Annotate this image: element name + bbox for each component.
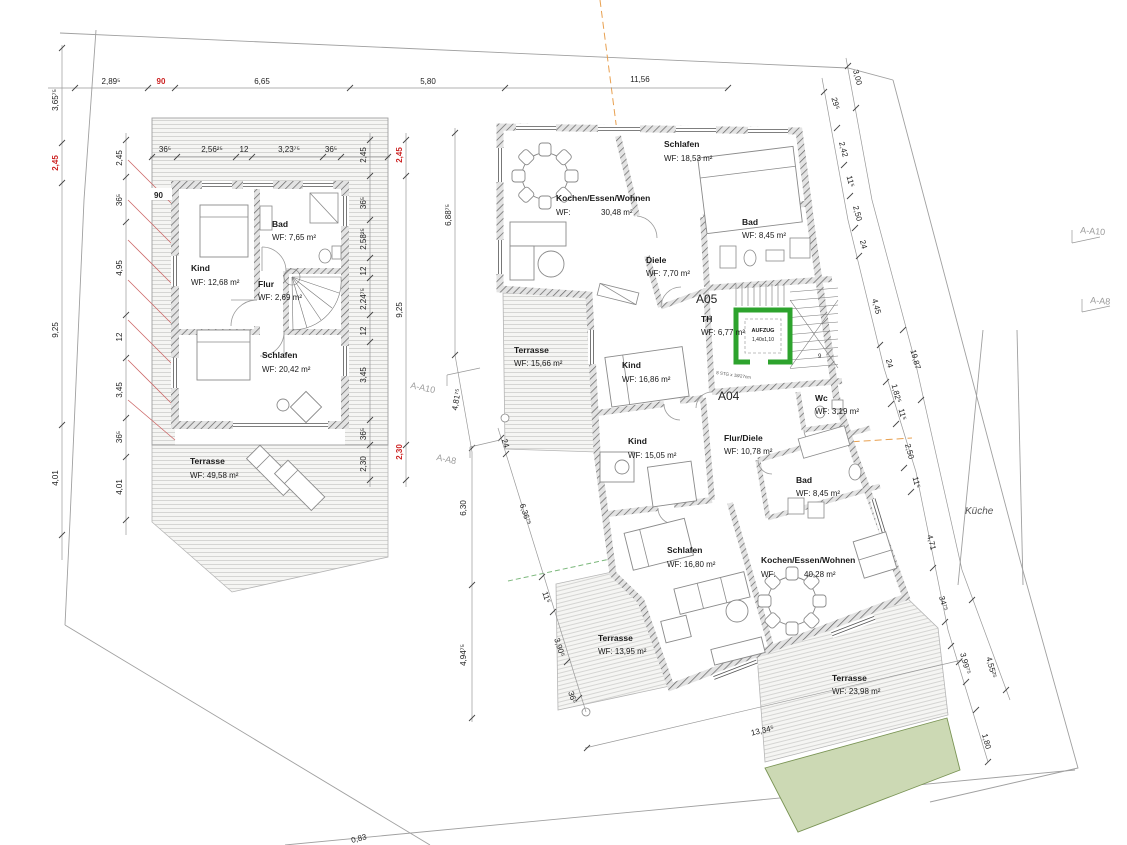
dim-label: 5,80 <box>420 77 436 86</box>
room-name: Kind <box>191 263 210 273</box>
right-plan: 9 8 STG x 18/27cm AUFZUG 1,40x1,10 <box>496 124 960 832</box>
dim-label: 9,25 <box>395 302 404 318</box>
room-name: Flur <box>258 279 275 289</box>
dim-label: 2,24⁷⁵ <box>359 288 368 310</box>
bed-kind <box>200 205 248 257</box>
dim-label: 2,42 <box>837 141 850 159</box>
dim-label: 3,23⁷⁵ <box>278 145 300 154</box>
dim-label: 4,81⁷⁵ <box>450 388 463 411</box>
dim-label: 2,58²⁵ <box>359 228 368 250</box>
room-area: WF: 6,77 m² <box>701 328 745 337</box>
dim-label: 12 <box>359 326 368 335</box>
dim-label: 4,01 <box>115 479 124 495</box>
dim-label: 12 <box>240 145 249 154</box>
room-area: WF: 2,69 m² <box>258 293 302 302</box>
room-name: Kind <box>622 360 641 370</box>
room-area: WF: 49,58 m² <box>190 471 239 480</box>
room-name: Diele <box>646 255 667 265</box>
dim-label: 3,45 <box>359 367 368 383</box>
dim-label: 6,36⁷⁵ <box>518 502 533 525</box>
room-name: Schlafen <box>664 139 699 149</box>
unit-label-a05: A05 <box>696 292 718 306</box>
dim-label: 4,94⁷⁵ <box>459 644 468 666</box>
dim-label: 24 <box>884 358 895 369</box>
coffee-table-a04 <box>726 600 748 622</box>
dim-label: 2,50 <box>851 205 864 223</box>
room-area: WF: 7,70 m² <box>646 269 690 278</box>
dim-label: 36⁵ <box>115 431 124 443</box>
left-plan: 90 Bad WF: 7,65 m² Kind WF: 12,68 m² Flu… <box>128 118 388 592</box>
dim-label: 36⁵ <box>115 194 124 206</box>
dim-label: 3,65⁷⁵ <box>51 89 60 111</box>
room-area: WF: 12,68 m² <box>191 278 240 287</box>
section-label-a10-left: A-A10 <box>410 380 437 395</box>
room-area: 40,28 m² <box>804 570 836 579</box>
elevator-door-gap <box>750 358 768 365</box>
dim-label: 6,30 <box>459 500 468 516</box>
room-name: Schlafen <box>262 350 297 360</box>
room-area: WF: 15,05 m² <box>628 451 677 460</box>
floor-plan-drawing: 90 Bad WF: 7,65 m² Kind WF: 12,68 m² Flu… <box>0 0 1127 845</box>
unit-label-a04: A04 <box>718 389 740 403</box>
dim-label: 12 <box>115 332 124 341</box>
dim-label: 29⁵ <box>829 96 841 110</box>
dim-label: 11⁵ <box>845 175 857 189</box>
deck-top-strip <box>152 118 388 184</box>
room-name: Terrasse <box>832 673 867 683</box>
deck-right-strip <box>345 184 388 445</box>
room-name: Kochen/Essen/Wohnen <box>761 555 855 565</box>
dim-label: 19,87 <box>908 349 922 371</box>
dim-label: 4,45 <box>870 298 883 316</box>
room-area: WF: 16,80 m² <box>667 560 716 569</box>
dim-label: 12 <box>359 266 368 275</box>
dim-label: 36⁵ <box>325 145 337 154</box>
dim-label: 2,45 <box>51 155 60 171</box>
room-area: WF: 13,95 m² <box>598 647 647 656</box>
dim-label: 4,55²⁵ <box>984 656 998 679</box>
dim-label: 11⁵ <box>911 476 923 490</box>
room-area: WF: 15,66 m² <box>514 359 563 368</box>
chair <box>277 399 289 411</box>
dim-label: 11⁵ <box>540 590 552 604</box>
dim-label: 6,65 <box>254 77 270 86</box>
section-label-a8-right: A-A8 <box>1090 295 1111 307</box>
dim-label: 2,45 <box>359 147 368 163</box>
dim-label: 90 <box>157 77 166 86</box>
room-name: Kochen/Essen/Wohnen <box>556 193 650 203</box>
room-name: Bad <box>272 219 288 229</box>
room-area: WF: 10,78 m² <box>724 447 773 456</box>
room-area: WF: 18,53 m² <box>664 154 713 163</box>
bed-kind2 <box>647 461 696 507</box>
dim-label: 2,56²⁵ <box>201 145 223 154</box>
room-area: 30,48 m² <box>601 208 633 217</box>
room-name: Flur/Diele <box>724 433 763 443</box>
dim-label: 2,45 <box>395 147 404 163</box>
section-label-a10-right: A-A10 <box>1080 225 1106 237</box>
dim-label: 36⁵ <box>159 145 171 154</box>
elevator-size: 1,40x1,10 <box>752 337 774 343</box>
level-mark-label: 0,83 <box>350 832 368 845</box>
wall-thickness-mark: 90 <box>154 191 163 200</box>
dim-label: 4,71 <box>925 534 938 552</box>
dim-label: 2,50 <box>903 443 916 461</box>
room-name: Bad <box>796 475 812 485</box>
dim-label: 24 <box>858 239 869 250</box>
dim-label: 2,30 <box>359 456 368 472</box>
elevator-label: AUFZUG <box>752 328 775 334</box>
room-area: WF: 8,45 m² <box>796 489 840 498</box>
section-label-a8-left: A-A8 <box>436 452 458 466</box>
dim-label: 2,89⁵ <box>102 77 121 86</box>
room-name: Terrasse <box>514 345 549 355</box>
room-area: WF: 16,86 m² <box>622 375 671 384</box>
plan-svg: 90 Bad WF: 7,65 m² Kind WF: 12,68 m² Flu… <box>0 0 1127 845</box>
room-area: WF: 8,45 m² <box>742 231 786 240</box>
dim-label: 3,45 <box>115 382 124 398</box>
dim-label: 34⁷⁵ <box>937 595 950 612</box>
deck-drain-1 <box>501 414 509 422</box>
room-name: Wc <box>815 393 828 403</box>
room-name: Bad <box>742 217 758 227</box>
dim-label: 2,45 <box>115 150 124 166</box>
room-name: Terrasse <box>598 633 633 643</box>
room-name: Terrasse <box>190 456 225 466</box>
dim-label: 36⁵ <box>359 428 368 440</box>
dim-label: 1,80 <box>980 733 993 751</box>
room-area: WF: 20,42 m² <box>262 365 311 374</box>
bed-schlafen <box>197 330 250 380</box>
room-name: Schlafen <box>667 545 702 555</box>
elevator: AUFZUG 1,40x1,10 <box>736 310 790 365</box>
dim-label: 36⁵ <box>359 197 368 209</box>
dim-label: 2,30 <box>395 444 404 460</box>
terrace-west-deck <box>503 293 597 452</box>
room-name: Kind <box>628 436 647 446</box>
room-name: TH <box>701 314 712 324</box>
kueche-context-label: Küche <box>965 506 994 517</box>
room-wf: WF: <box>556 208 571 217</box>
room-wf: WF: <box>761 570 776 579</box>
dim-label: 6,88⁷⁵ <box>444 204 453 226</box>
dim-label: 11⁵ <box>897 408 909 422</box>
dim-label: 11,56 <box>630 75 650 84</box>
room-area: WF: 3,19 m² <box>815 407 859 416</box>
room-area: WF: 7,65 m² <box>272 233 316 242</box>
dim-label: 4,01 <box>51 470 60 486</box>
dim-label: 4,95 <box>115 260 124 276</box>
dim-label: 9,25 <box>51 322 60 338</box>
